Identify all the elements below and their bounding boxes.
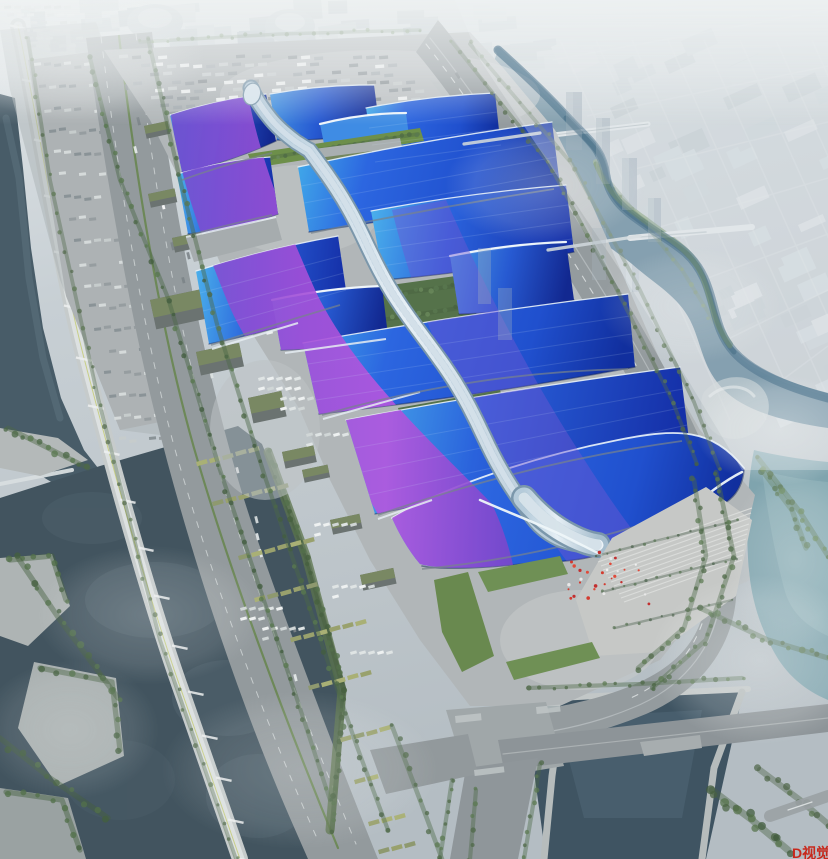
svg-text:D视觉: D视觉 [792,845,828,859]
